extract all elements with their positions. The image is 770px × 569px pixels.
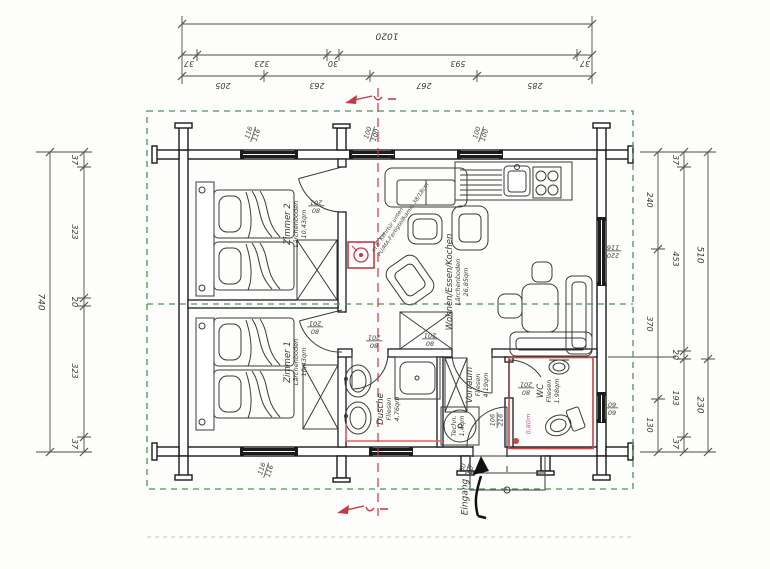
dimension-lines-top <box>178 16 596 84</box>
dim-right-c-0: 510 <box>694 246 703 263</box>
window-label-right2: 6060 <box>606 401 618 416</box>
entrance-label: Eingang <box>461 479 470 516</box>
dim-top-inner-2: 267 <box>416 81 431 89</box>
dim-top-inner-1: 263 <box>309 81 324 89</box>
dim-top-total: 1020 <box>376 30 399 39</box>
room-label-zimmer2: Zimmer 2 Lärchenboden 10,43qm <box>283 201 309 247</box>
floor-plan-drawing <box>0 0 770 569</box>
room-label-dusche: Dusche Fliesen 4,76qm <box>376 393 402 425</box>
tick-slashes-top <box>178 20 596 80</box>
dim-right-b-3: 193 <box>671 390 679 405</box>
room-label-wohnen: Wohnen/Essen/Kochen Lärchenboden 26,85qm <box>445 234 471 331</box>
room-label-vorraum: Vorraum Fliesen 4,19qm <box>465 367 491 403</box>
dim-top-inner-0: 205 <box>215 81 230 89</box>
door-label-zimmer1: 80201 <box>307 320 323 335</box>
section-mark-bottom <box>337 505 388 514</box>
dim-right-b-1: 453 <box>671 251 679 266</box>
door-label-vorraum: 80201 <box>422 332 438 347</box>
window-label-right1: 220116 <box>605 244 621 259</box>
dim-right-c-1: 230 <box>694 396 703 413</box>
dim-top-mid-2: 30 <box>328 59 338 67</box>
dim-left-total: 740 <box>35 293 44 310</box>
dim-left-2: 20 <box>70 297 78 307</box>
dim-left-1: 323 <box>70 224 78 239</box>
door-label-zimmer2: 80201 <box>308 199 324 214</box>
dim-left-3: 323 <box>70 363 78 378</box>
door-label-dusche: 80201 <box>366 334 382 349</box>
dim-top-mid-3: 593 <box>450 59 465 67</box>
dim-top-inner-3: 285 <box>527 81 542 89</box>
dim-top-mid-0: 37 <box>184 59 194 67</box>
section-mark-top <box>345 95 396 104</box>
dim-right-a-2: 130 <box>645 417 653 432</box>
dim-right-b-4: 37 <box>671 439 679 449</box>
room-label-zimmer1: Zimmer 1 Lärchenboden 10,43qm <box>283 339 309 385</box>
room-label-wc: WC Fliesen 1,98qm <box>536 379 562 404</box>
dim-top-mid-1: 323 <box>254 59 269 67</box>
door-label-wc: 80201 <box>518 381 534 396</box>
dim-left-4: 37 <box>70 439 78 449</box>
entrance-opening <box>473 446 508 457</box>
dim-right-b-2: 20 <box>671 350 679 360</box>
dim-right-b-0: 37 <box>671 155 679 165</box>
wc-magenta-note: 0,80m <box>526 414 533 435</box>
tick-slashes-left <box>46 148 88 456</box>
room-label-techn: Techn. 1,4qm <box>451 415 467 436</box>
door-label-entrance: 106216 <box>490 412 505 428</box>
dim-top-mid-4: 37 <box>580 59 590 67</box>
dim-left-0: 37 <box>70 155 78 165</box>
dim-right-a-1: 370 <box>645 316 653 331</box>
floor-plan-sheet: 1020 37 323 30 593 37 205 263 267 285 74… <box>0 0 770 569</box>
dim-right-a-0: 240 <box>645 192 653 207</box>
